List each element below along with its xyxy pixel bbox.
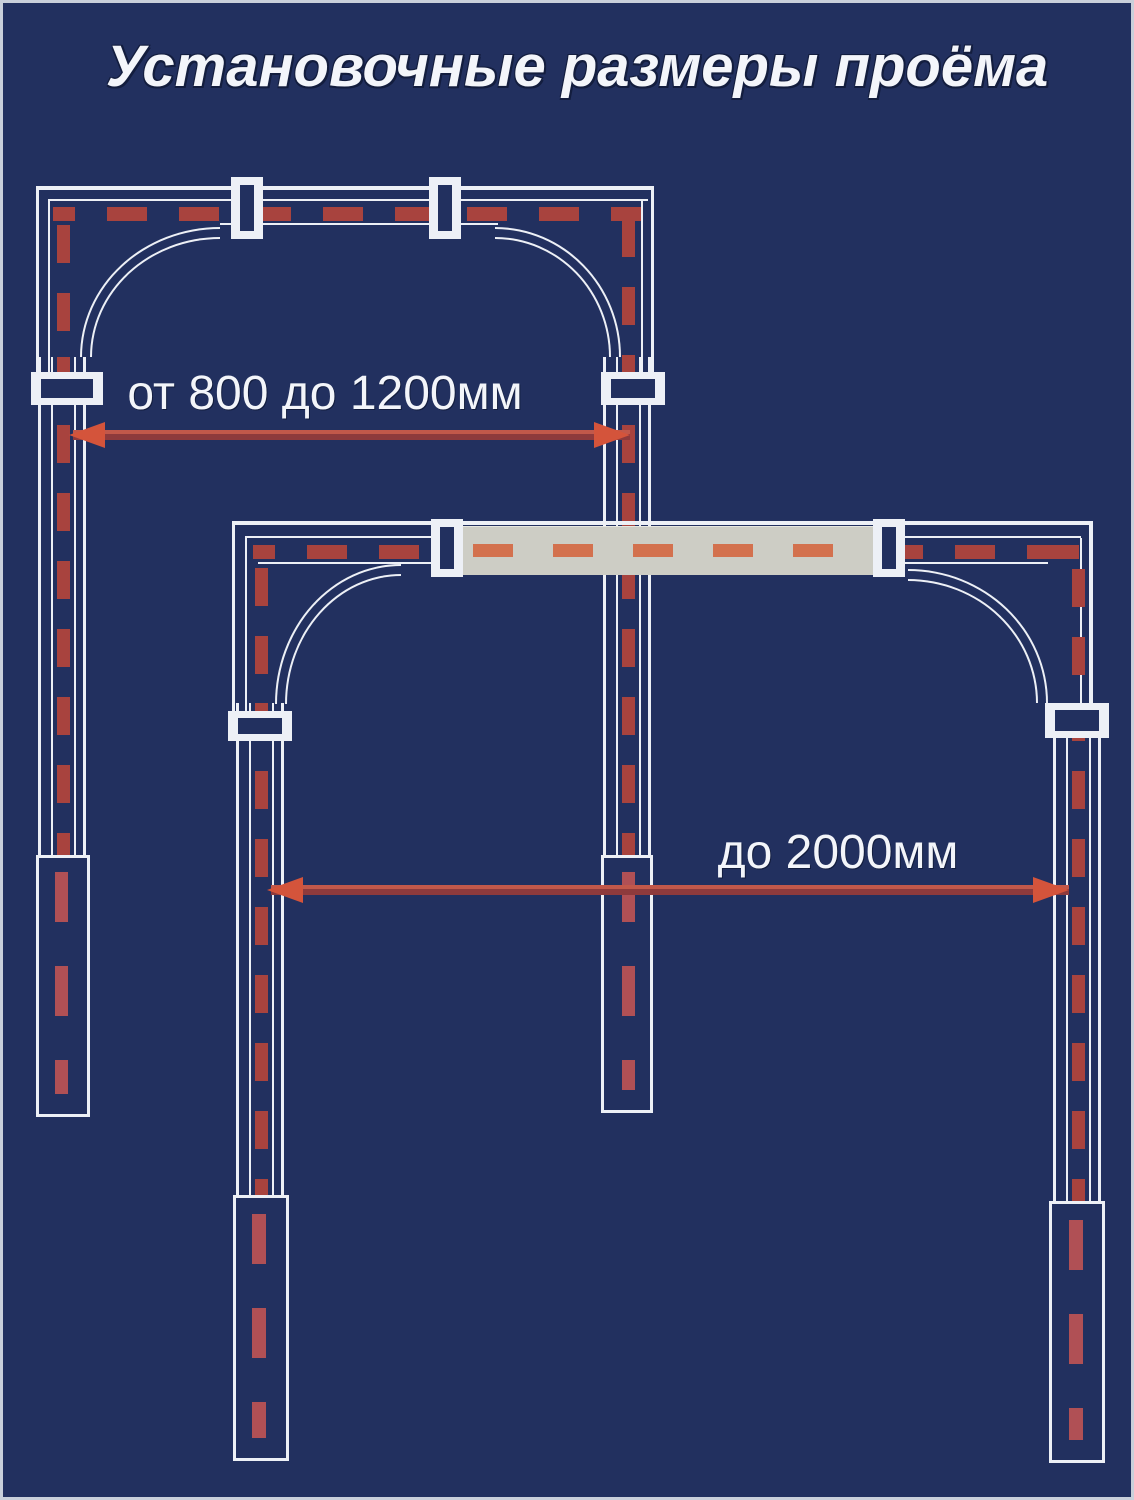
arch-small-right-dash-column [622, 219, 635, 357]
arch-large-arrowhead-left [267, 877, 303, 903]
dimension-label-large-arch: до 2000мм [638, 825, 1038, 880]
arch-large-top-bracket-right [873, 519, 905, 577]
arch-large-rail-outer-top [232, 521, 1093, 525]
arch-small-arrowhead-right [594, 422, 630, 448]
arch-small-rail-outer-top [36, 186, 654, 190]
arch-small-rail-inner-top [48, 199, 648, 201]
arch-small-left-foot [36, 855, 90, 1117]
arch-small-top-bracket-right [429, 177, 461, 239]
arch-large-left-foot [233, 1195, 289, 1461]
arch-large-left-edge-inner [245, 536, 247, 713]
arch-large-left-dash-column [255, 568, 268, 711]
arch-large-right-edge-outer [1089, 525, 1093, 707]
arch-small-dimension-line [73, 430, 630, 440]
arch-small-left-edge-inner [48, 199, 50, 372]
arch-small-rail-red-dashes [53, 207, 641, 221]
arch-small-left-curve-inner [90, 237, 220, 357]
arch-large-arrowhead-right [1033, 877, 1069, 903]
expander-bar [461, 526, 875, 575]
arch-small-right-curve-inner [495, 237, 611, 357]
arch-large-left-edge-outer [232, 521, 235, 713]
arch-small-left-edge-outer [36, 186, 39, 372]
arch-large-right-foot [1049, 1201, 1105, 1463]
arch-small-arrowhead-left [69, 422, 105, 448]
arch-large-right-dash-column [1072, 569, 1085, 703]
arch-large-right-leg [1053, 703, 1101, 1201]
arch-large-dimension-line [271, 885, 1069, 895]
arch-small-left-dash-column [57, 225, 70, 357]
installation-dimensions-diagram: Установочные размеры проёма от 800 до 12… [0, 0, 1134, 1500]
arch-large-left-curve-inner [285, 574, 401, 704]
arch-large-right-curve-inner [908, 579, 1038, 703]
arch-large-top-bracket-left [431, 519, 463, 577]
dimension-label-small-arch: от 800 до 1200мм [123, 366, 527, 421]
page-title: Установочные размеры проёма [106, 33, 1046, 100]
arch-small-side-bracket-left [31, 372, 103, 405]
arch-small-top-bracket-left [231, 177, 263, 239]
arch-large-left-leg [236, 703, 284, 1195]
arch-small-side-bracket-right [601, 372, 665, 405]
arch-small-right-edge-inner [641, 199, 643, 372]
arch-large-side-bracket-left [228, 711, 292, 741]
arch-large-side-bracket-right [1045, 703, 1109, 738]
arch-small-right-edge-outer [651, 186, 654, 372]
expander-bar-red-dashes [473, 544, 865, 557]
